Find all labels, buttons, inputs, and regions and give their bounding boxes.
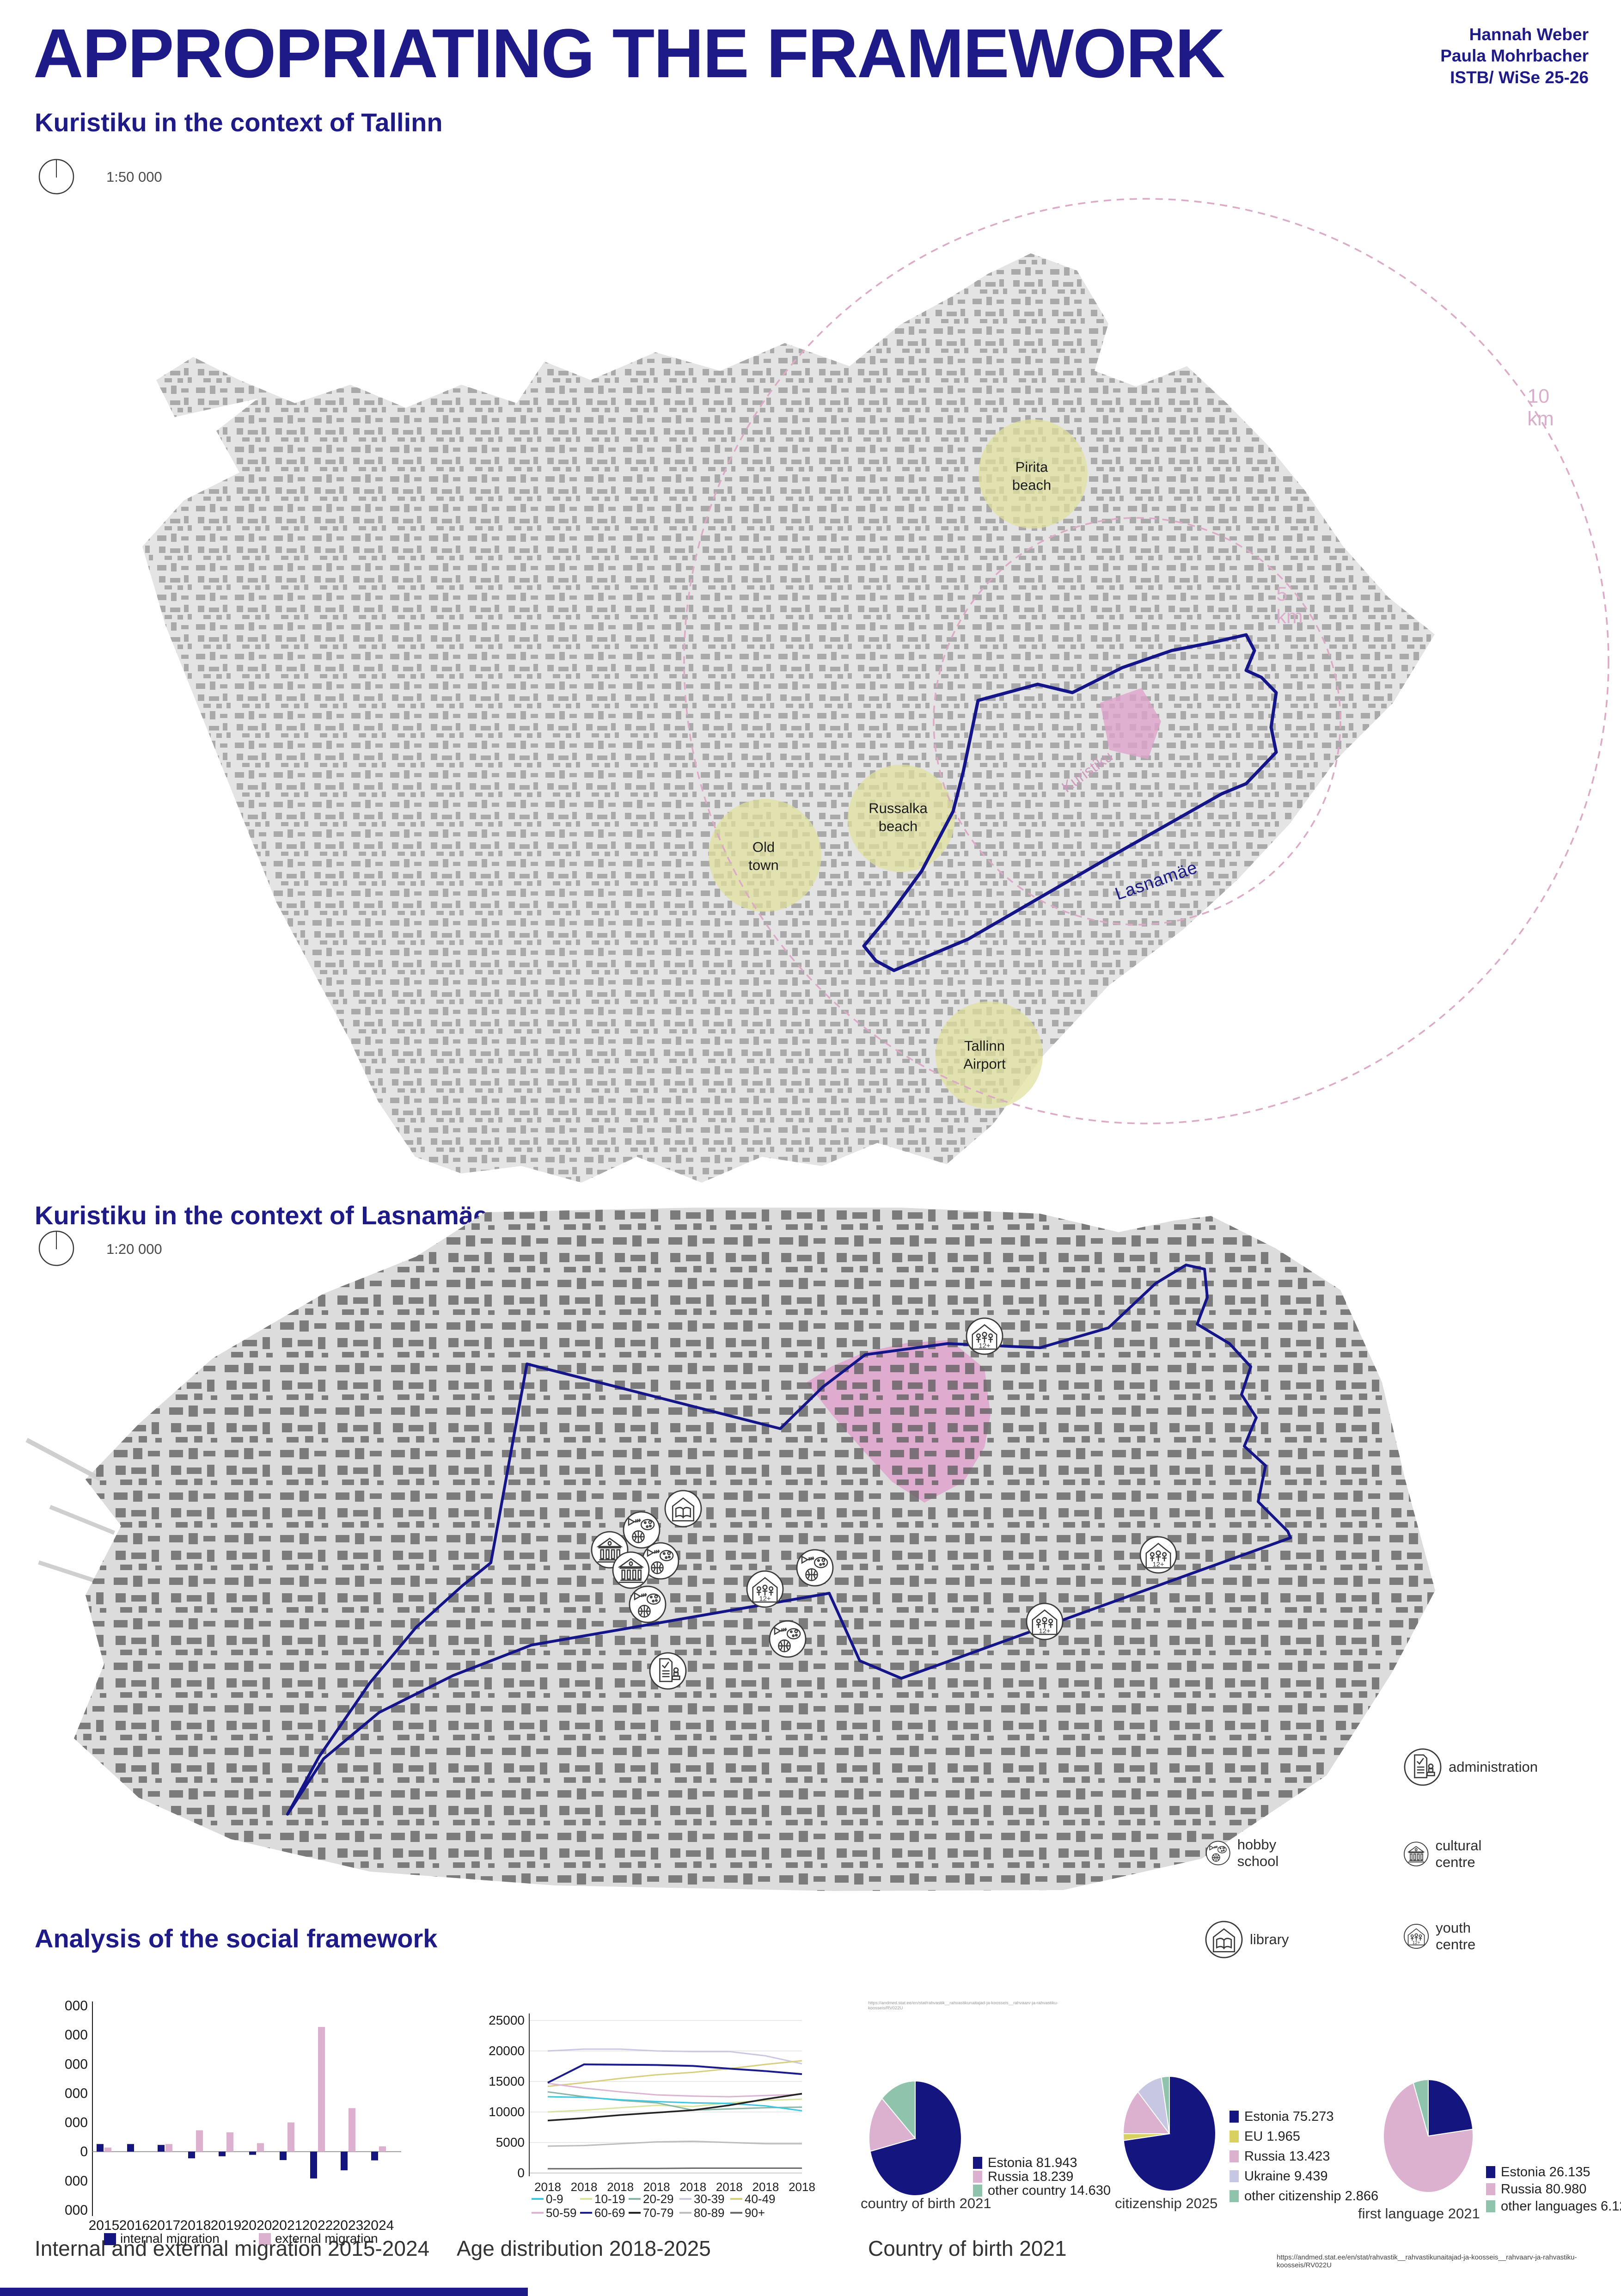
svg-text:2018: 2018: [789, 2180, 815, 2194]
label-airport: Tallinn Airport: [963, 1037, 1005, 1073]
svg-text:2020: 2020: [241, 2218, 272, 2233]
legend-label: youth centre: [1436, 1920, 1488, 1953]
scale-label-tallinn: 1:50 000: [106, 169, 162, 185]
migration-bar-chart: -2000-1000010002000300040005000201520162…: [65, 1995, 416, 2247]
svg-text:2018: 2018: [571, 2180, 598, 2194]
youth-centre-icon: [966, 1318, 1003, 1354]
svg-text:5000: 5000: [496, 2135, 525, 2149]
svg-text:0-9: 0-9: [546, 2192, 563, 2206]
svg-text:other languages 6.123: other languages 6.123: [1501, 2199, 1621, 2214]
pie-caption-language: first language 2021: [1358, 2205, 1480, 2222]
caption-migration: Internal and external migration 2015-202…: [35, 2236, 429, 2261]
building-texture: [74, 1208, 1435, 1891]
svg-text:Russia 80.980: Russia 80.980: [1501, 2182, 1586, 2197]
library-icon: [665, 1491, 701, 1527]
svg-text:Estonia 81.943: Estonia 81.943: [988, 2155, 1077, 2170]
section-heading-tallinn: Kuristiku in the context of Tallinn: [35, 107, 443, 137]
hobby-school-icon: [797, 1550, 833, 1586]
legend-label: administration: [1449, 1759, 1538, 1775]
legend-label: library: [1250, 1931, 1289, 1948]
source-url[interactable]: https://andmed.stat.ee/en/stat/rahvastik…: [1277, 2253, 1621, 2269]
library-icon: [1205, 1920, 1243, 1959]
first-language-pie: Estonia 26.135Russia 80.980other languag…: [1368, 2071, 1621, 2215]
label-old-town: Old town: [748, 838, 778, 874]
harbor-piers: [25, 1438, 115, 1583]
hobby-school-icon: [1205, 1834, 1231, 1872]
administration-icon: [1403, 1748, 1442, 1786]
author-line: Hannah Weber: [1440, 24, 1589, 45]
poster-page: APPROPRIATING THE FRAMEWORK Hannah Weber…: [0, 0, 1621, 2296]
svg-text:EU 1.965: EU 1.965: [1244, 2129, 1300, 2144]
footer-accent-bar: [0, 2288, 528, 2296]
legend-item-youth-centre: youth centre: [1403, 1917, 1488, 1956]
svg-text:other citizenship 2.866: other citizenship 2.866: [1244, 2189, 1378, 2204]
svg-text:25000: 25000: [489, 2013, 525, 2027]
section-heading-analysis: Analysis of the social framework: [35, 1923, 437, 1953]
page-title: APPROPRIATING THE FRAMEWORK: [33, 18, 1224, 88]
hobby-school-icon: [770, 1621, 806, 1657]
svg-text:Russia 18.239: Russia 18.239: [988, 2169, 1073, 2184]
svg-text:20-29: 20-29: [643, 2192, 674, 2206]
svg-text:-2000: -2000: [65, 2203, 88, 2218]
building-texture: [142, 253, 1435, 1183]
svg-text:60-69: 60-69: [594, 2206, 625, 2220]
svg-text:90+: 90+: [745, 2206, 765, 2220]
source-url-small[interactable]: https://andmed.stat.ee/en/stat/rahvastik…: [868, 2001, 1090, 2011]
svg-text:80-89: 80-89: [694, 2206, 725, 2220]
svg-text:2000: 2000: [65, 2086, 88, 2101]
svg-text:15000: 15000: [489, 2074, 525, 2088]
svg-text:40-49: 40-49: [745, 2192, 776, 2206]
youth-centre-icon: [1140, 1537, 1176, 1573]
svg-text:2015: 2015: [89, 2218, 120, 2233]
map-tallinn-canvas: [0, 194, 1621, 1193]
hobby-school-icon: [630, 1586, 666, 1622]
label-russalka-beach: Russalka beach: [869, 799, 928, 835]
legend-label: hobby school: [1237, 1836, 1292, 1870]
course-line: ISTB/ WiSe 25-26: [1440, 67, 1589, 88]
svg-text:Ukraine 9.439: Ukraine 9.439: [1244, 2169, 1328, 2184]
pie-caption-citizenship: citizenship 2025: [1115, 2195, 1217, 2212]
legend-item-administration: administration: [1403, 1748, 1538, 1786]
label-ring-5km: 5 km: [1276, 583, 1303, 628]
age-line-chart: 0500010000150002000025000201820182018201…: [481, 1995, 832, 2247]
svg-text:10000: 10000: [489, 2105, 525, 2119]
label-ring-10km: 10 km: [1527, 385, 1554, 430]
authors-block: Hannah Weber Paula Mohrbacher ISTB/ WiSe…: [1440, 24, 1589, 88]
svg-text:30-39: 30-39: [694, 2192, 725, 2206]
svg-text:Estonia 26.135: Estonia 26.135: [1501, 2165, 1590, 2179]
svg-text:50-59: 50-59: [546, 2206, 577, 2220]
svg-text:-1000: -1000: [65, 2173, 88, 2189]
administration-icon: [650, 1653, 686, 1689]
svg-text:10-19: 10-19: [594, 2192, 625, 2206]
cultural-centre-icon: [613, 1552, 649, 1588]
caption-age: Age distribution 2018-2025: [457, 2236, 711, 2261]
svg-text:20000: 20000: [489, 2044, 525, 2058]
svg-text:0: 0: [80, 2144, 88, 2160]
caption-birth: Country of birth 2021: [868, 2236, 1067, 2261]
hobby-school-icon: [624, 1512, 660, 1548]
label-pirita-beach: Pirita beach: [1012, 458, 1051, 494]
svg-text:70-79: 70-79: [643, 2206, 674, 2220]
svg-text:5000: 5000: [65, 1998, 88, 2014]
svg-text:1000: 1000: [65, 2115, 88, 2130]
svg-text:4000: 4000: [65, 2027, 88, 2043]
svg-text:Russia 13.423: Russia 13.423: [1244, 2149, 1330, 2164]
youth-centre-icon: [747, 1571, 783, 1607]
north-arrow-icon: [36, 156, 77, 197]
youth-centre-icon: [1027, 1603, 1063, 1639]
author-line: Paula Mohrbacher: [1440, 45, 1589, 67]
legend-item-library: library: [1205, 1920, 1289, 1959]
legend-label: cultural centre: [1435, 1837, 1495, 1871]
country-of-birth-pie: Estonia 81.943Russia 18.239other country…: [860, 2071, 1146, 2210]
svg-text:other country 14.630: other country 14.630: [988, 2183, 1111, 2198]
legend-item-cultural-centre: cultural centre: [1403, 1835, 1495, 1873]
map-lasnamae-canvas: [0, 1202, 1621, 1905]
svg-text:3000: 3000: [65, 2057, 88, 2072]
pie-caption-birth: country of birth 2021: [861, 2195, 991, 2212]
svg-text:0: 0: [517, 2166, 525, 2180]
cultural-centre-icon: [1403, 1835, 1429, 1873]
youth-centre-icon: [1403, 1917, 1429, 1956]
svg-text:Estonia 75.273: Estonia 75.273: [1244, 2109, 1334, 2124]
legend-item-hobby-school: hobby school: [1205, 1834, 1292, 1872]
